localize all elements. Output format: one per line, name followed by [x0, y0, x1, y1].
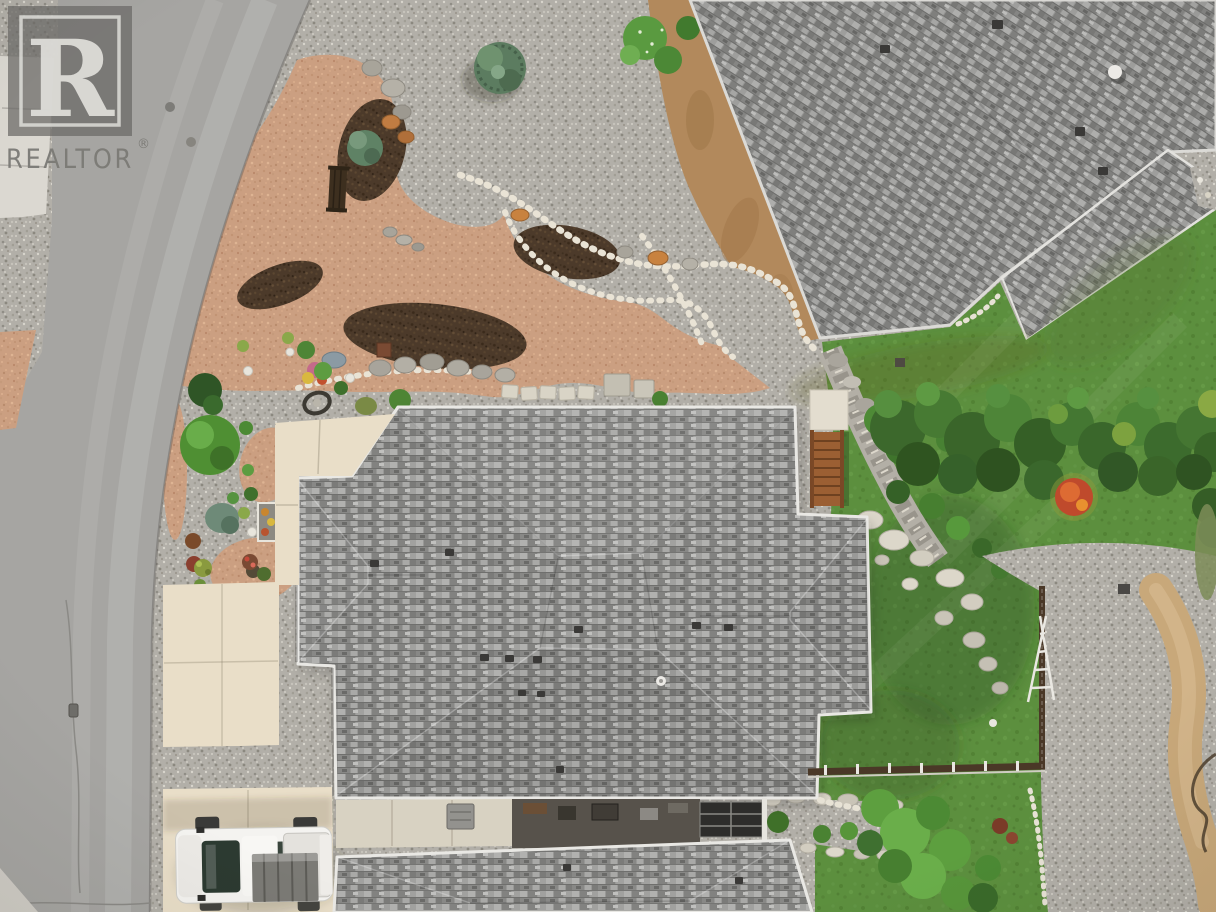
photo-vignette — [0, 0, 1216, 912]
aerial-photo-canvas — [0, 0, 1216, 912]
aerial-photo: R REALTOR ® — [0, 0, 1216, 912]
